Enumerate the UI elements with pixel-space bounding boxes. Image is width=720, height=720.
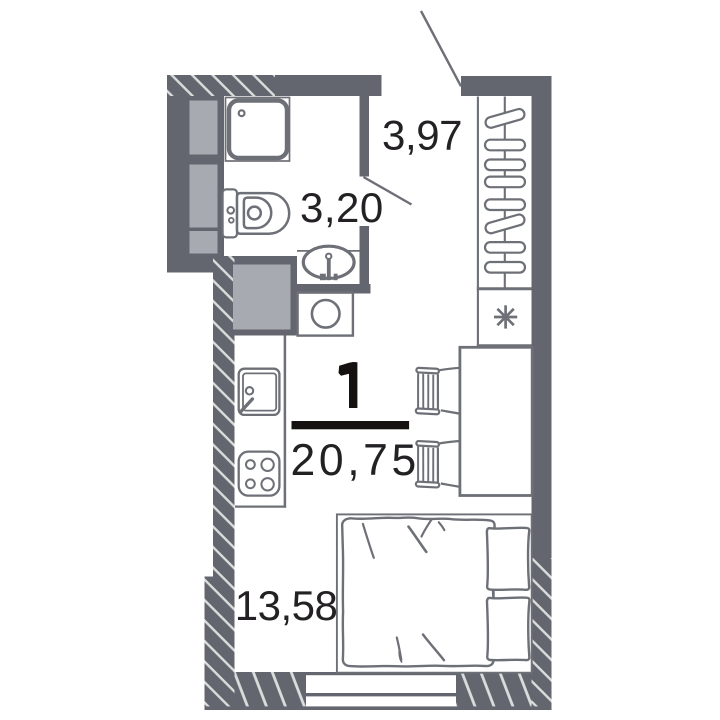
svg-text:13,58: 13,58 xyxy=(235,582,338,629)
svg-text:3,97: 3,97 xyxy=(382,111,462,158)
svg-text:20,75: 20,75 xyxy=(291,436,420,485)
svg-text:3,20: 3,20 xyxy=(300,184,384,231)
